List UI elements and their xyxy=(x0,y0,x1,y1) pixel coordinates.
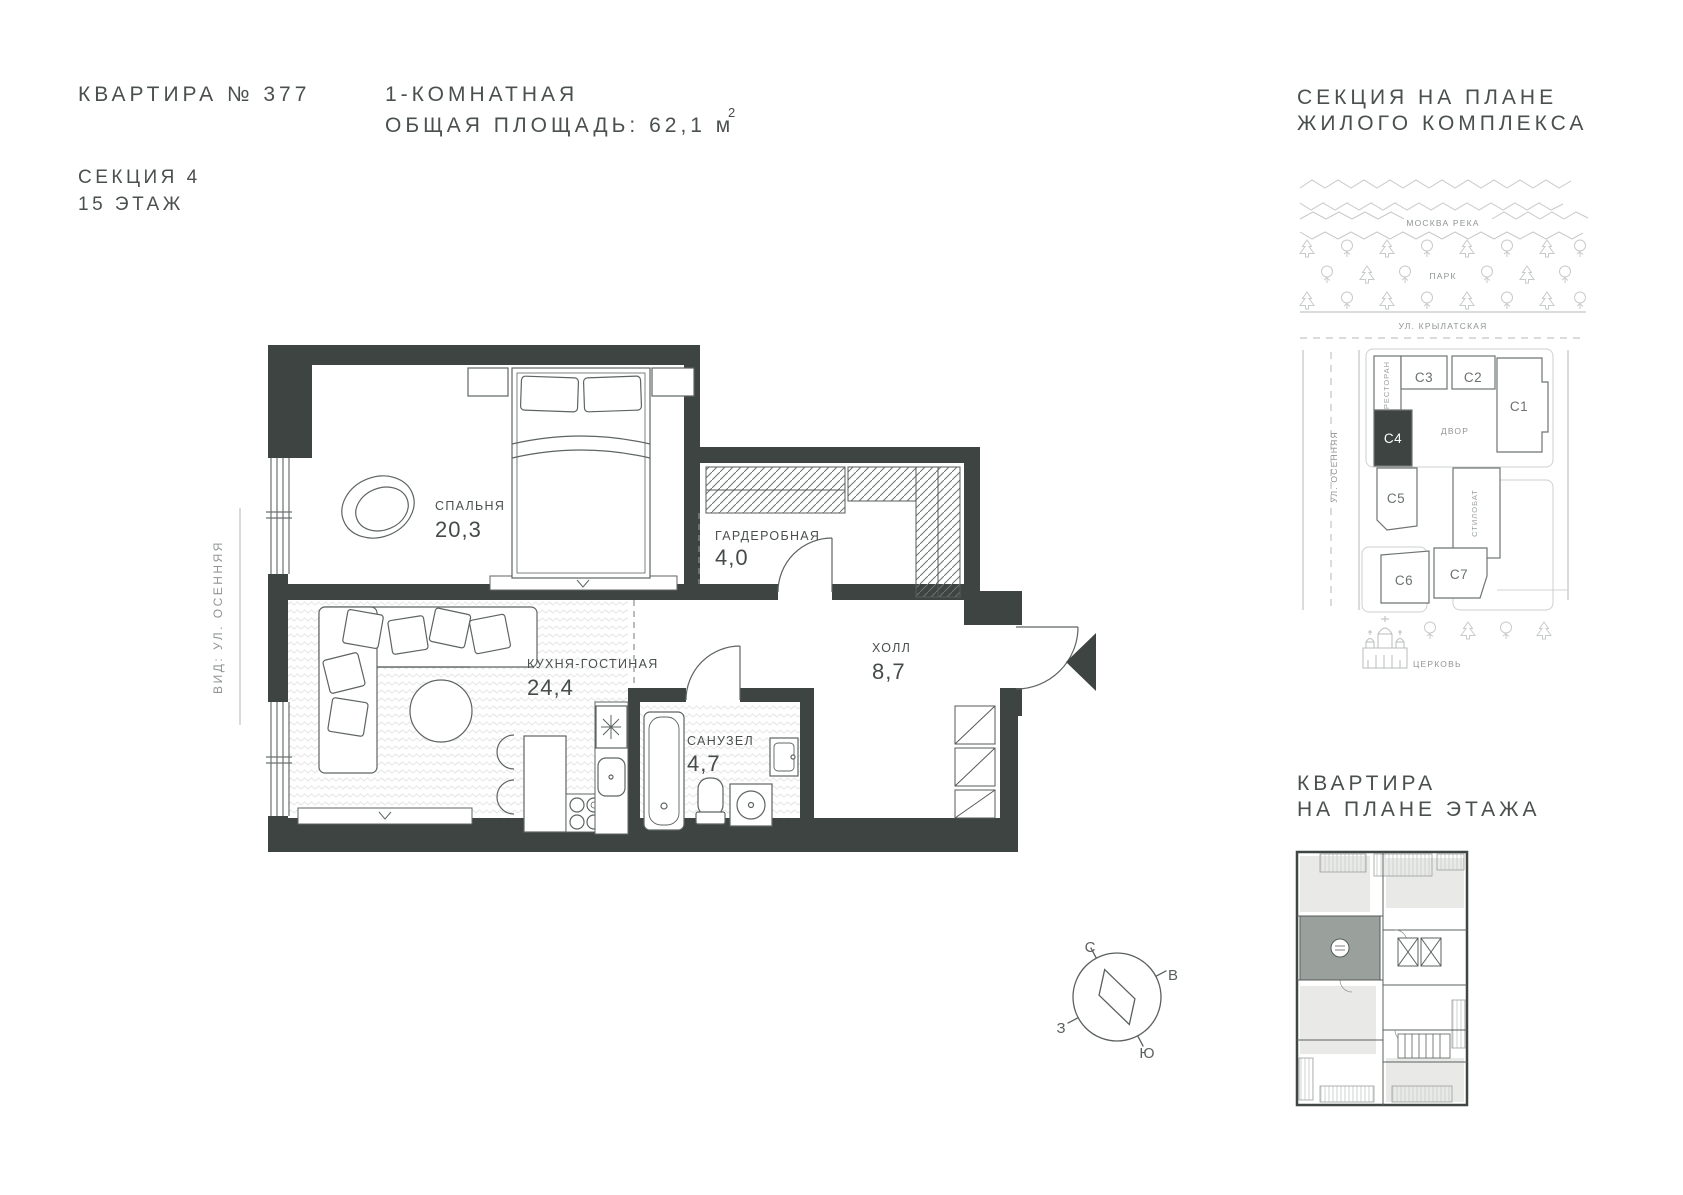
compass: С В З Ю xyxy=(1041,921,1192,1072)
bathtub xyxy=(644,712,684,830)
room-area: 20,3 xyxy=(435,517,482,542)
kitchen-counter xyxy=(595,702,628,834)
compass-north: С xyxy=(1085,939,1096,956)
nightstand-left xyxy=(468,368,508,396)
street-view-text: ВИД: УЛ. ОСЕННЯЯ xyxy=(211,540,225,694)
washing-machine xyxy=(730,784,772,826)
street-left-label: УЛ. ОСЕННЯЯ xyxy=(1329,431,1339,503)
section-label-c5: С5 xyxy=(1387,491,1405,506)
bath-sink xyxy=(770,738,798,776)
river-label: МОСКВА РЕКА xyxy=(1406,218,1479,228)
stairs xyxy=(1398,1034,1450,1058)
floor-label: 15 ЭТАЖ xyxy=(78,194,184,215)
apartment-type: 1-КОМНАТНАЯ xyxy=(385,83,578,106)
window-left-top xyxy=(266,458,292,574)
room-area: 24,4 xyxy=(527,675,574,700)
room-name: ХОЛЛ xyxy=(872,641,911,655)
courtyard-label: ДВОР xyxy=(1441,426,1469,436)
highlighted-apartment[interactable] xyxy=(1300,916,1380,980)
hall-closet-shelves xyxy=(955,706,995,818)
section-label: СЕКЦИЯ 4 xyxy=(78,167,201,188)
room-name: СПАЛЬНЯ xyxy=(435,499,505,513)
room-area: 8,7 xyxy=(872,659,906,684)
nightstand-right xyxy=(652,368,694,396)
section-label-c2: С2 xyxy=(1464,370,1482,385)
bed xyxy=(512,368,650,578)
total-area: ОБЩАЯ ПЛОЩАДЬ: 62,1 м xyxy=(385,114,734,137)
toilet xyxy=(696,778,725,824)
room-name: КУХНЯ-ГОСТИНАЯ xyxy=(527,657,659,671)
site-plan-title-1: СЕКЦИЯ НА ПЛАНЕ xyxy=(1297,86,1557,109)
bathroom-door xyxy=(686,646,740,700)
main-floor-plan: СПАЛЬНЯ 20,3 ГАРДЕРОБНАЯ 4,0 КУХНЯ-ГОСТИ… xyxy=(266,345,1096,852)
compass-south: Ю xyxy=(1139,1045,1154,1062)
stylobate-label: СТИЛОБАТ xyxy=(1470,489,1479,537)
room-name: САНУЗЕЛ xyxy=(687,734,754,748)
armchair xyxy=(332,465,423,548)
total-area-sup: 2 xyxy=(728,105,735,120)
bedroom-furniture xyxy=(332,368,694,578)
wardrobe-door xyxy=(778,538,832,592)
section-label-c7: С7 xyxy=(1450,567,1468,582)
church-label: ЦЕРКОВЬ xyxy=(1413,659,1462,669)
church-icon xyxy=(1363,616,1407,668)
entrance-arrow-icon xyxy=(1066,633,1096,691)
window-sill xyxy=(298,808,472,824)
room-name: ГАРДЕРОБНАЯ xyxy=(715,529,820,543)
section-label-c3: С3 xyxy=(1415,370,1433,385)
floor-mini-title-1: КВАРТИРА xyxy=(1297,772,1436,795)
site-plan: СЕКЦИЯ НА ПЛАНЕ ЖИЛОГО КОМПЛЕКСА МОСКВА … xyxy=(1297,86,1588,669)
page-title: КВАРТИРА № 377 xyxy=(78,83,310,106)
room-area: 4,0 xyxy=(715,545,749,570)
floor-mini-plan: КВАРТИРА НА ПЛАНЕ ЭТАЖА xyxy=(1297,772,1541,1105)
bottom-trees xyxy=(1425,622,1552,639)
floor-mini-title-2: НА ПЛАНЕ ЭТАЖА xyxy=(1297,798,1541,821)
entrance-door xyxy=(1016,627,1078,689)
river-waves xyxy=(1300,180,1588,239)
street-view-label: ВИД: УЛ. ОСЕННЯЯ xyxy=(211,508,240,725)
site-plan-title-2: ЖИЛОГО КОМПЛЕКСА xyxy=(1297,112,1587,135)
compass-west: З xyxy=(1056,1020,1065,1037)
compass-east: В xyxy=(1168,967,1178,984)
round-table xyxy=(410,680,472,742)
floorplan-sheet: КВАРТИРА № 377 СЕКЦИЯ 4 15 ЭТАЖ 1-КОМНАТ… xyxy=(0,0,1683,1190)
restaurant-label: РЕСТОРАН xyxy=(1382,361,1391,409)
compass-needle xyxy=(1090,963,1145,1030)
section-label-c1: С1 xyxy=(1510,399,1528,414)
street-top-label: УЛ. КРЫЛАТСКАЯ xyxy=(1398,321,1487,331)
section-label-c6: С6 xyxy=(1395,573,1413,588)
floor-mini-drawing xyxy=(1297,852,1467,1105)
park-label: ПАРК xyxy=(1429,271,1456,281)
section-label-c4: С4 xyxy=(1384,431,1402,446)
room-area: 4,7 xyxy=(687,751,721,776)
header: КВАРТИРА № 377 СЕКЦИЯ 4 15 ЭТАЖ 1-КОМНАТ… xyxy=(78,83,735,215)
